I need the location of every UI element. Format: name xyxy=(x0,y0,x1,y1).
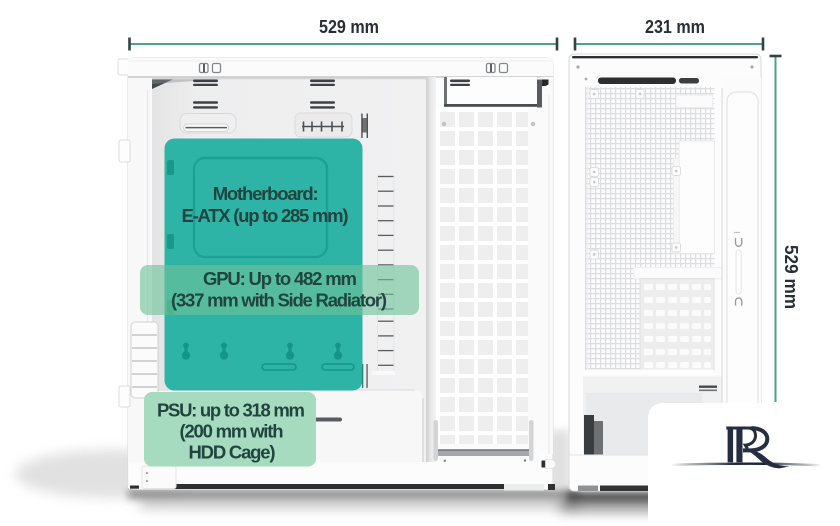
svg-text:(200 mm with: (200 mm with xyxy=(180,421,284,442)
svg-text:E-ATX (up to 285 mm): E-ATX (up to 285 mm) xyxy=(182,205,349,226)
svg-text:529 mm: 529 mm xyxy=(319,16,379,37)
svg-text:231 mm: 231 mm xyxy=(645,16,705,37)
svg-text:(337 mm with Side Radiator): (337 mm with Side Radiator) xyxy=(171,290,387,311)
svg-text:PSU: up to 318 mm: PSU: up to 318 mm xyxy=(157,400,305,421)
svg-text:Motherboard:: Motherboard: xyxy=(213,183,319,204)
svg-text:HDD Cage): HDD Cage) xyxy=(189,442,276,463)
svg-text:GPU: Up to 482 mm: GPU: Up to 482 mm xyxy=(203,268,357,289)
svg-text:529 mm: 529 mm xyxy=(781,245,802,309)
